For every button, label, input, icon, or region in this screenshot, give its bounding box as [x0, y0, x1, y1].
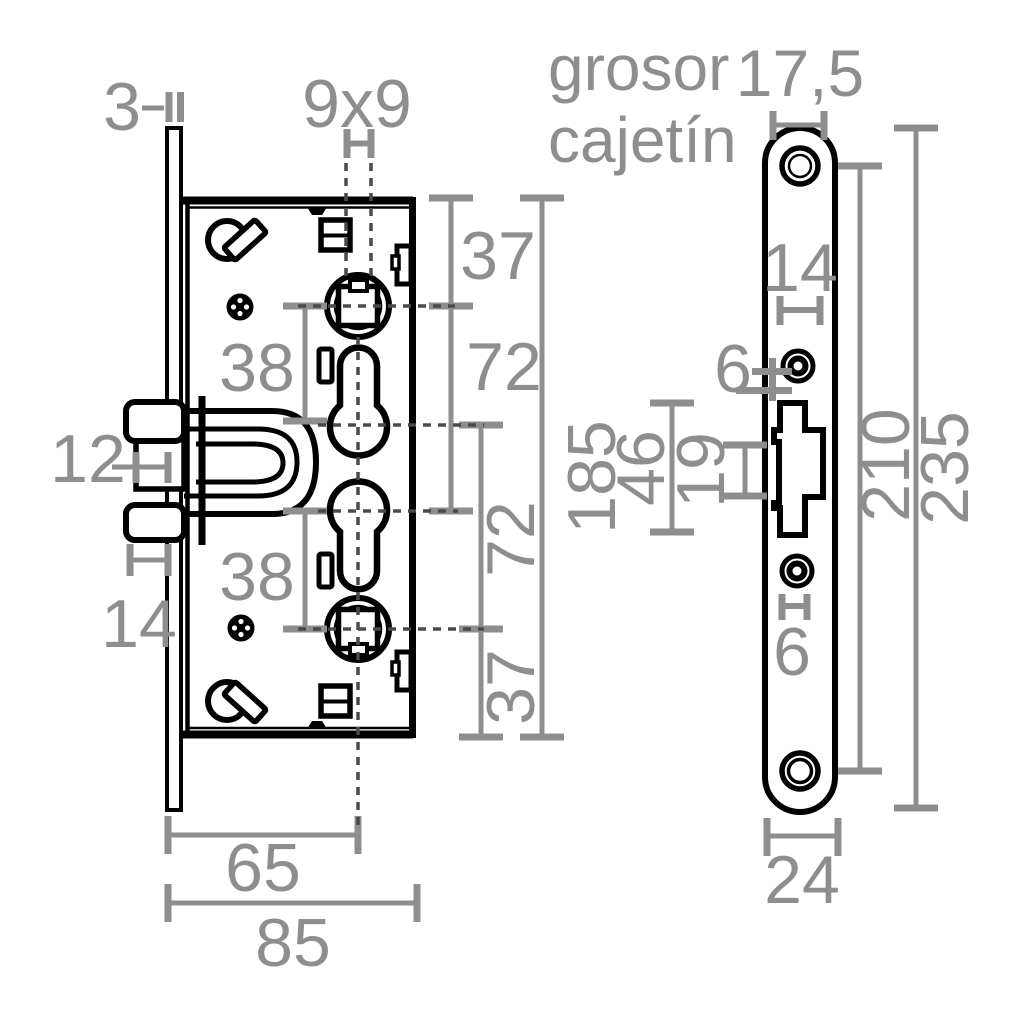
label-plate-thickness: 3 [103, 69, 141, 145]
edge-tab-top [392, 246, 411, 284]
label-spindle-square: 9x9 [302, 66, 412, 142]
label-plate-width: 24 [764, 842, 840, 918]
note-grosor: grosor [548, 32, 729, 104]
slot-window-top [319, 349, 332, 382]
spring-block-bottom [321, 686, 350, 716]
dimension-labels: 3 9x9 37 72 185 72 37 38 38 12 14 65 85 … [50, 32, 983, 981]
label-spindle-to-cylinder: 72 [466, 329, 542, 405]
screw-hole-top [782, 148, 818, 184]
lock-dimension-drawing: 3 9x9 37 72 185 72 37 38 38 12 14 65 85 … [0, 0, 1024, 1024]
label-38-upper: 38 [219, 330, 295, 406]
label-hole-upper: 6 [714, 331, 752, 407]
label-plate-height: 235 [907, 411, 983, 524]
rivet-bottom [228, 615, 255, 642]
bolt-prong-bottom [126, 505, 184, 540]
edge-tab-bottom [392, 652, 411, 690]
label-top-to-spindle: 37 [460, 218, 536, 294]
label-38-lower: 38 [219, 539, 295, 615]
slot-window-bottom [319, 554, 332, 587]
label-spindle-to-bottom: 37 [473, 649, 549, 725]
fixing-hole-upper [783, 351, 813, 381]
case-bottom-notch [307, 721, 327, 729]
screw-hole-bottom [782, 753, 818, 789]
label-case-thickness: 17,5 [736, 36, 864, 110]
label-backset: 65 [225, 830, 301, 906]
bolt-prong-top [126, 402, 184, 441]
dim-bolt-projection [127, 544, 172, 576]
case-top-notch [307, 207, 327, 215]
note-cajetin: cajetín [548, 104, 737, 176]
label-cylinder-to-spindle: 72 [473, 501, 549, 577]
label-hole-lower: 6 [773, 614, 811, 690]
label-bolt-mouth: 12 [50, 421, 126, 497]
bolt-mouth-profile [196, 444, 283, 482]
technical-drawing-page: 3 9x9 37 72 185 72 37 38 38 12 14 65 85 … [0, 0, 1024, 1024]
dim-plate-thickness [142, 92, 184, 122]
label-case-depth: 85 [255, 905, 331, 981]
fixing-hole-lower [782, 556, 812, 586]
label-window-width: 14 [762, 230, 838, 306]
bolt-middle-block [136, 439, 184, 489]
label-bolt-projection: 14 [101, 586, 177, 662]
label-window-height: 19 [663, 432, 739, 508]
rivet-top [227, 294, 254, 321]
